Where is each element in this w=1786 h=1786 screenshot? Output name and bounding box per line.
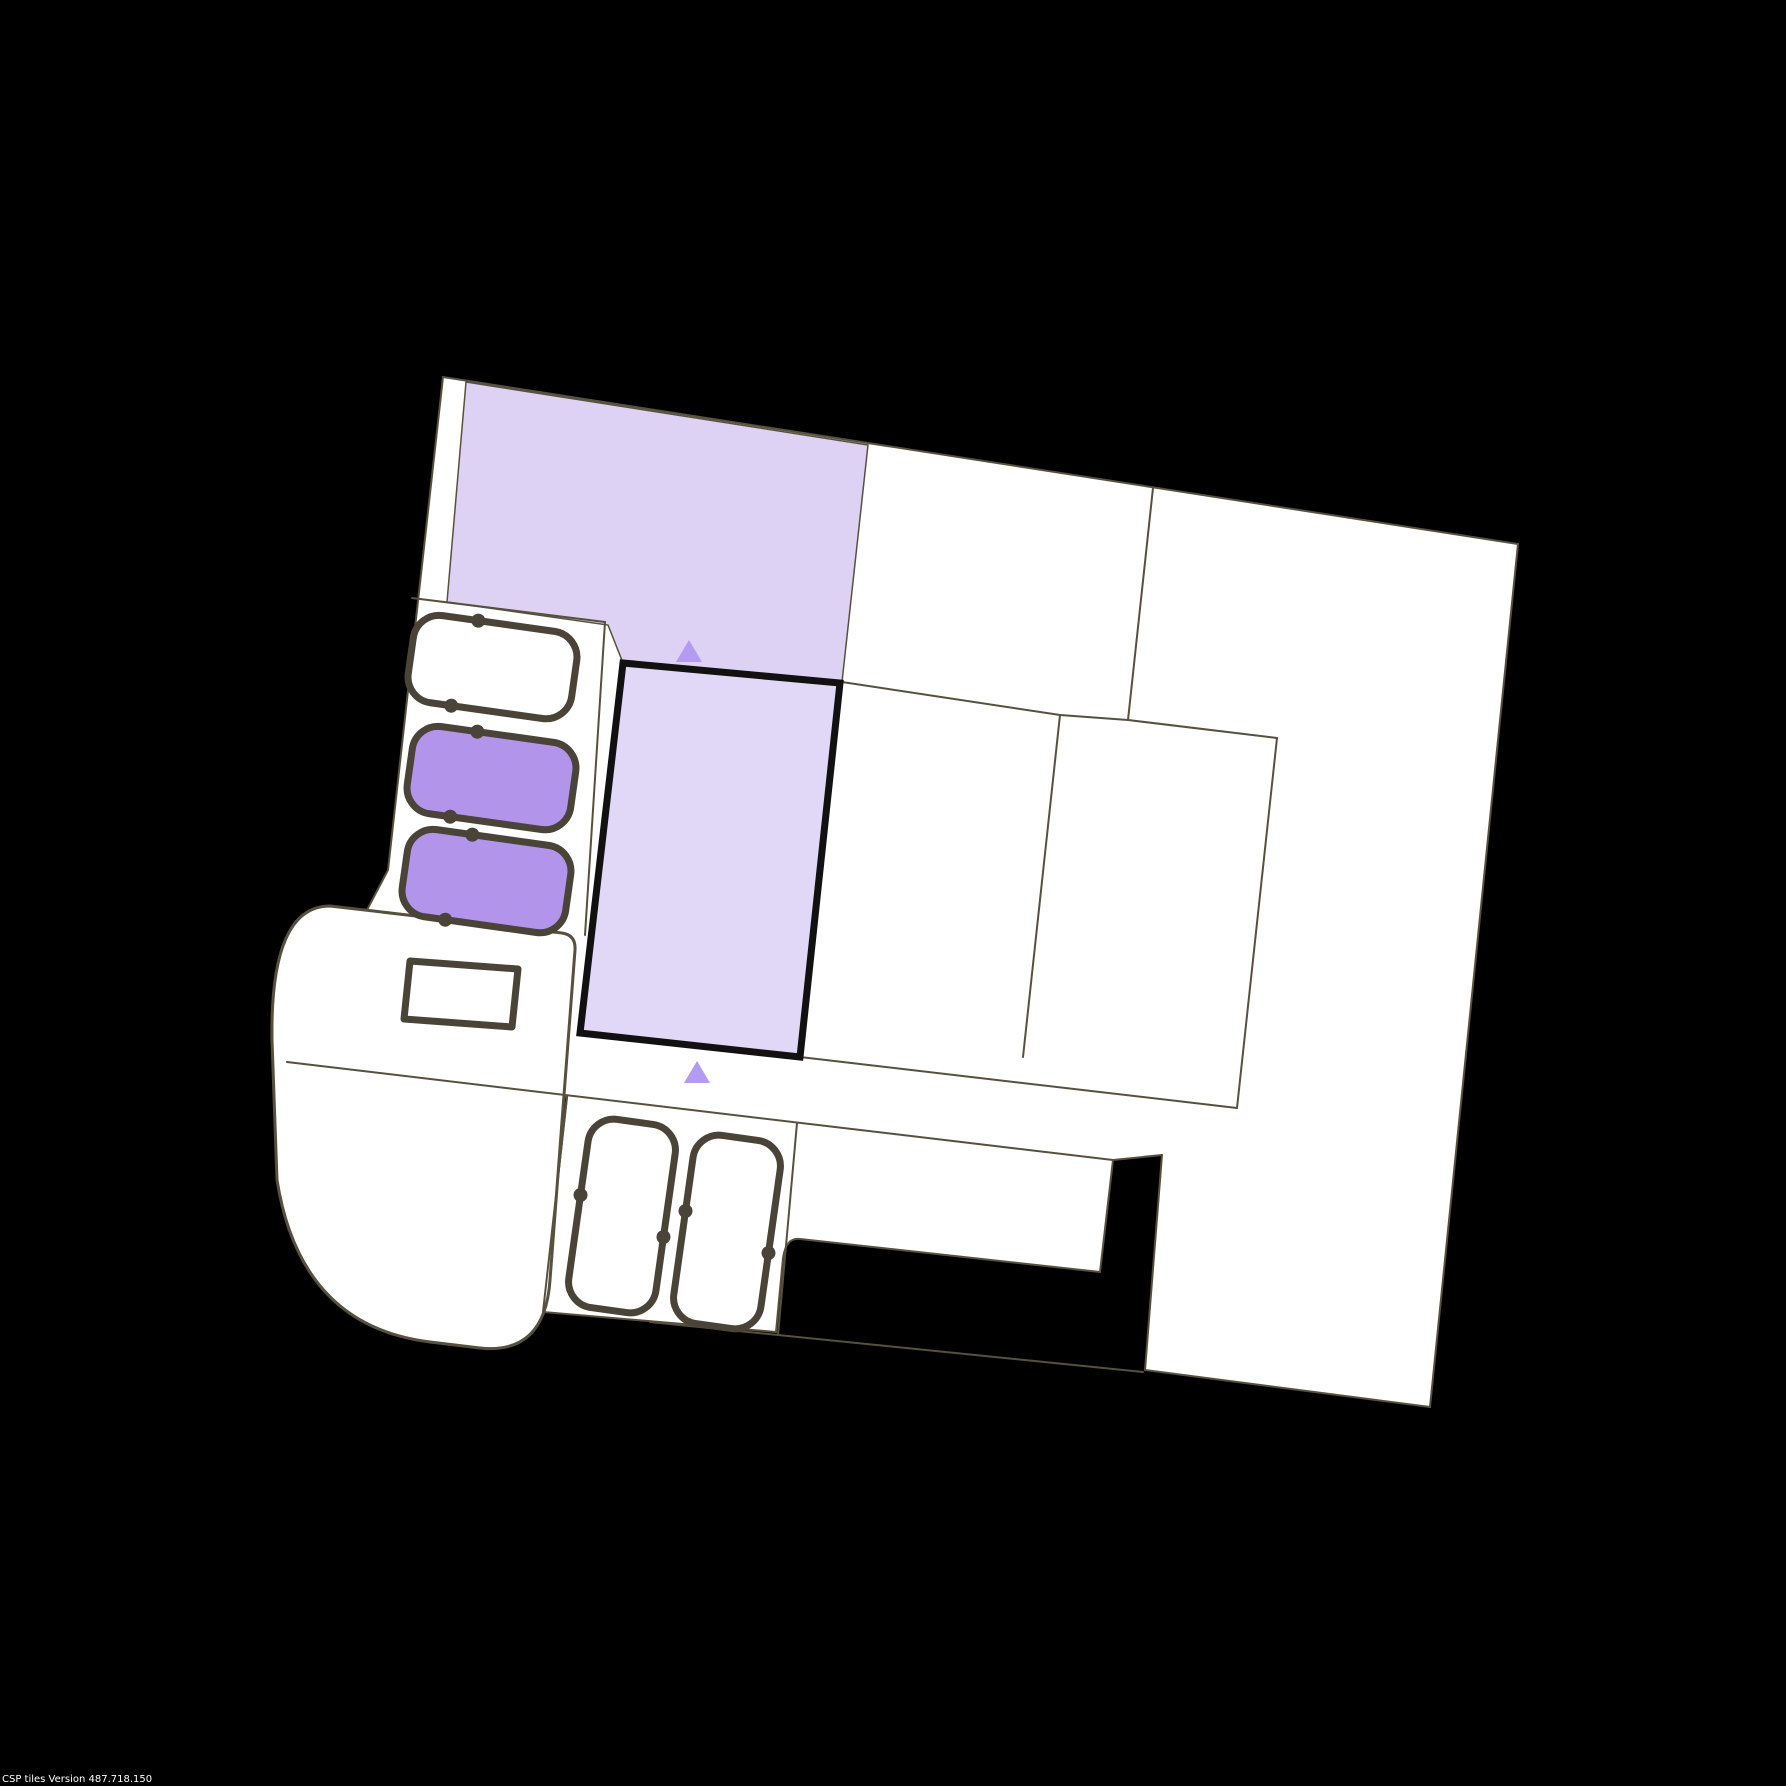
kiosk-desk[interactable] <box>404 961 518 1027</box>
version-watermark: CSP tiles Version 487.718.150 <box>2 1774 152 1785</box>
selected-room[interactable] <box>580 663 840 1057</box>
floor-plan-svg <box>0 0 1786 1786</box>
indoor-map-canvas[interactable] <box>0 0 1786 1786</box>
